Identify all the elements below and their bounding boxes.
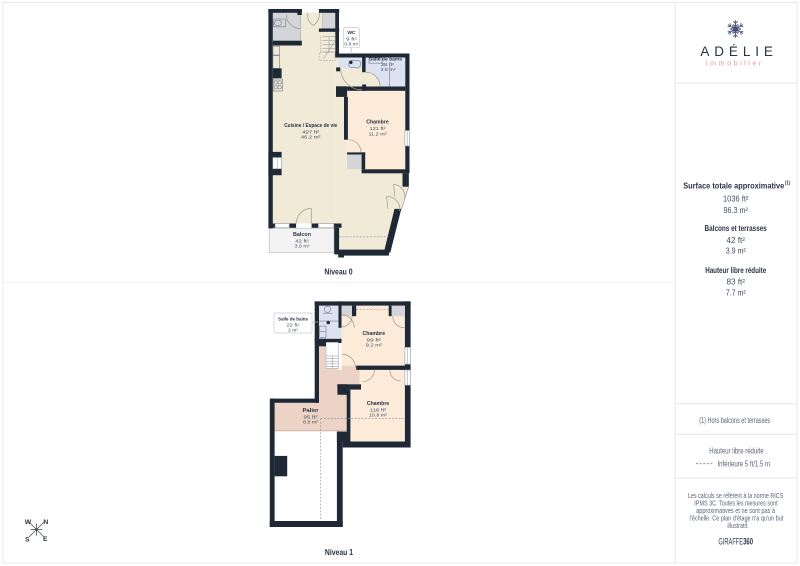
svg-text:3.5 m²: 3.5 m² [381,67,397,72]
svg-text:Balcon: Balcon [293,232,311,238]
svg-text:N: N [43,519,48,526]
svg-text:9.2 m²: 9.2 m² [366,343,383,348]
svg-text:Cuisine / Espace de vie: Cuisine / Espace de vie [284,123,337,129]
svg-text:8.8 m²: 8.8 m² [303,420,319,425]
svg-text:GIRAFFE: GIRAFFE [718,536,743,546]
svg-text:10.8 m²: 10.8 m² [369,413,388,418]
svg-text:Niveau 0: Niveau 0 [324,267,352,277]
svg-text:2 m²: 2 m² [288,327,299,332]
svg-text:Chambre: Chambre [366,119,389,125]
svg-text:Hauteur libre réduite: Hauteur libre réduite [705,266,766,275]
svg-text:ADÉLIE: ADÉLIE [700,44,777,59]
svg-text:Chambre: Chambre [363,331,386,337]
svg-text:7.7 m²: 7.7 m² [726,289,746,298]
svg-text:Inférieure 5 ft/1.5 m: Inférieure 5 ft/1.5 m [718,459,771,468]
svg-text:W: W [25,519,32,526]
svg-text:83 ft²: 83 ft² [726,278,745,287]
svg-text:Balcons et terrasses: Balcons et terrasses [705,224,768,233]
svg-text:Surface totale approximative: Surface totale approximative [683,180,784,190]
svg-text:immobilier: immobilier [706,59,764,68]
svg-text:WC: WC [347,30,356,36]
svg-text:3.9 m²: 3.9 m² [726,247,746,256]
svg-text:E: E [43,536,48,543]
svg-text:S: S [25,537,30,544]
svg-text:42 ft²: 42 ft² [726,236,745,245]
svg-text:11.2 m²: 11.2 m² [369,131,388,136]
svg-text:Chambre: Chambre [367,401,390,407]
svg-text:(1) Hors balcons et terrasses: (1) Hors balcons et terrasses [699,416,770,425]
svg-text:0.8 m²: 0.8 m² [344,42,359,47]
svg-text:96.3 m²: 96.3 m² [723,206,748,215]
svg-text:(1): (1) [785,180,790,186]
svg-text:illustratif.: illustratif. [727,521,748,530]
svg-text:360: 360 [743,536,753,546]
svg-text:3.9 m²: 3.9 m² [295,244,311,249]
svg-text:46.2 m²: 46.2 m² [301,134,321,139]
svg-text:Hauteur libre réduite: Hauteur libre réduite [709,446,763,455]
svg-text:Niveau 1: Niveau 1 [325,547,353,557]
svg-text:Palier: Palier [303,408,320,414]
svg-text:1036 ft²: 1036 ft² [723,195,749,204]
